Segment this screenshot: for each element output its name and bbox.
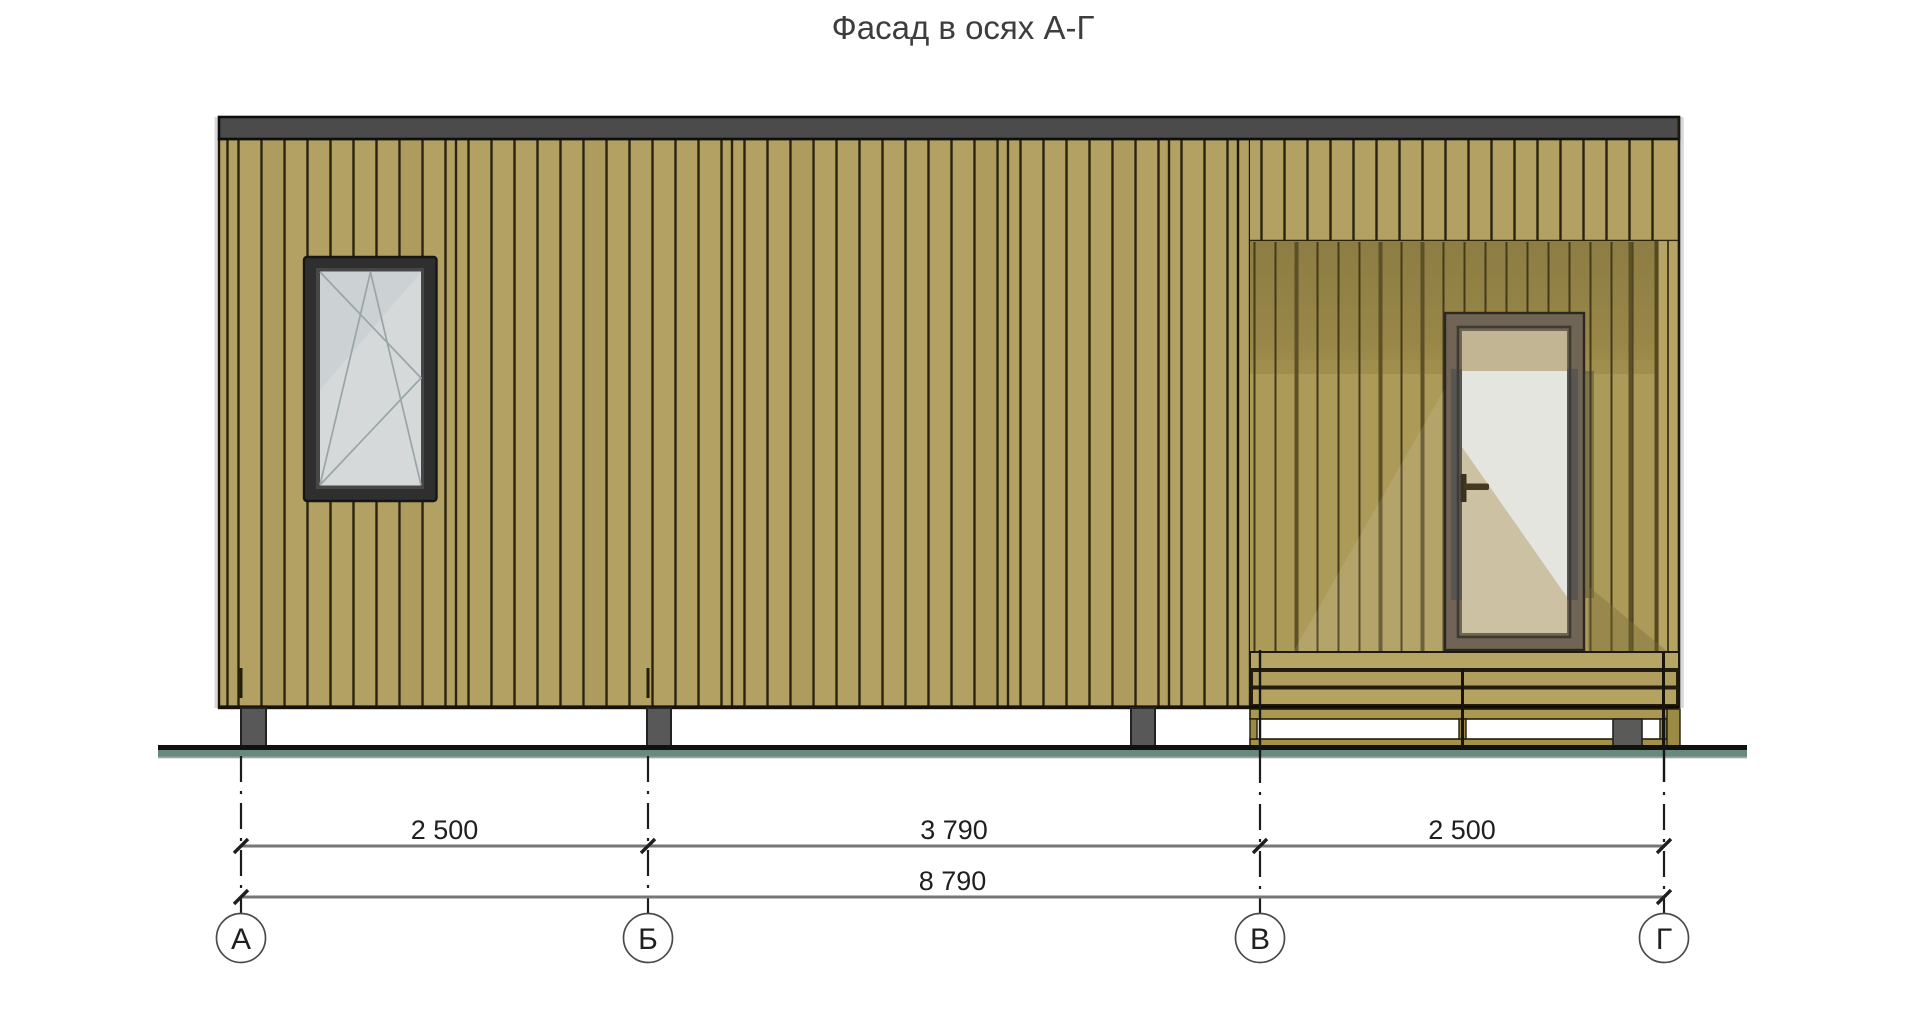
svg-text:А: А (231, 923, 251, 956)
svg-text:Г: Г (1656, 923, 1672, 956)
svg-text:Б: Б (638, 923, 658, 956)
svg-text:2 500: 2 500 (411, 815, 479, 845)
svg-text:8 790: 8 790 (919, 866, 987, 896)
svg-text:2 500: 2 500 (1428, 815, 1496, 845)
svg-text:В: В (1250, 923, 1270, 956)
svg-text:Фасад в осях А-Г: Фасад в осях А-Г (832, 9, 1095, 46)
svg-text:3 790: 3 790 (920, 815, 988, 845)
